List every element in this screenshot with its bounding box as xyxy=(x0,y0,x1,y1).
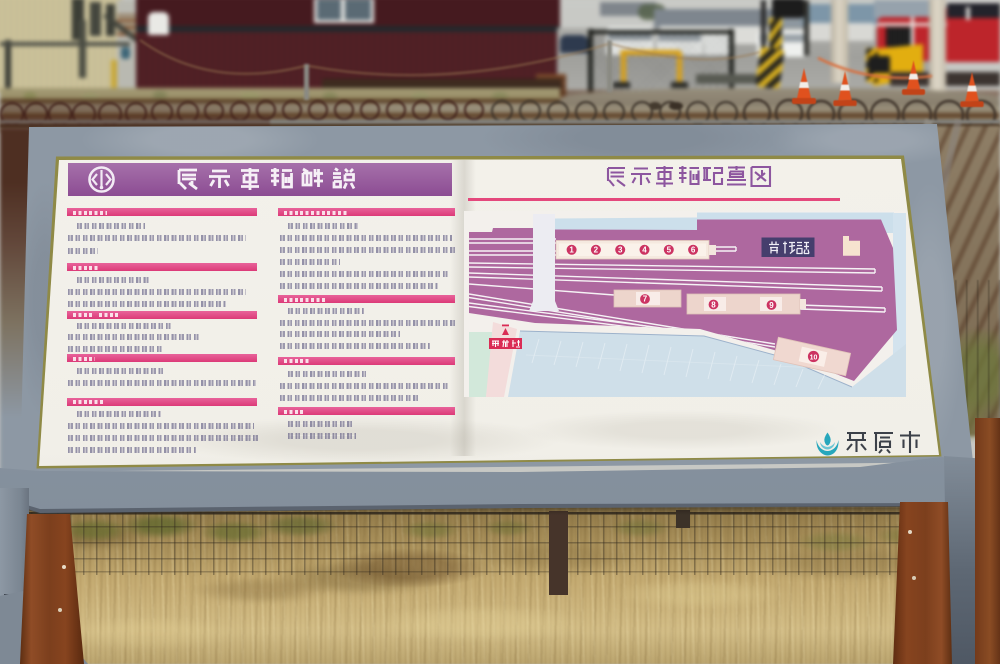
svg-text:5: 5 xyxy=(667,246,672,255)
svg-text:4: 4 xyxy=(642,246,647,255)
svg-text:6: 6 xyxy=(691,246,696,255)
svg-text:10: 10 xyxy=(810,354,818,361)
svg-text:3: 3 xyxy=(618,246,623,255)
svg-text:2: 2 xyxy=(594,246,599,255)
svg-text:1: 1 xyxy=(569,246,574,255)
svg-text:7: 7 xyxy=(643,294,648,303)
svg-text:9: 9 xyxy=(769,301,774,310)
svg-text:8: 8 xyxy=(711,300,716,309)
